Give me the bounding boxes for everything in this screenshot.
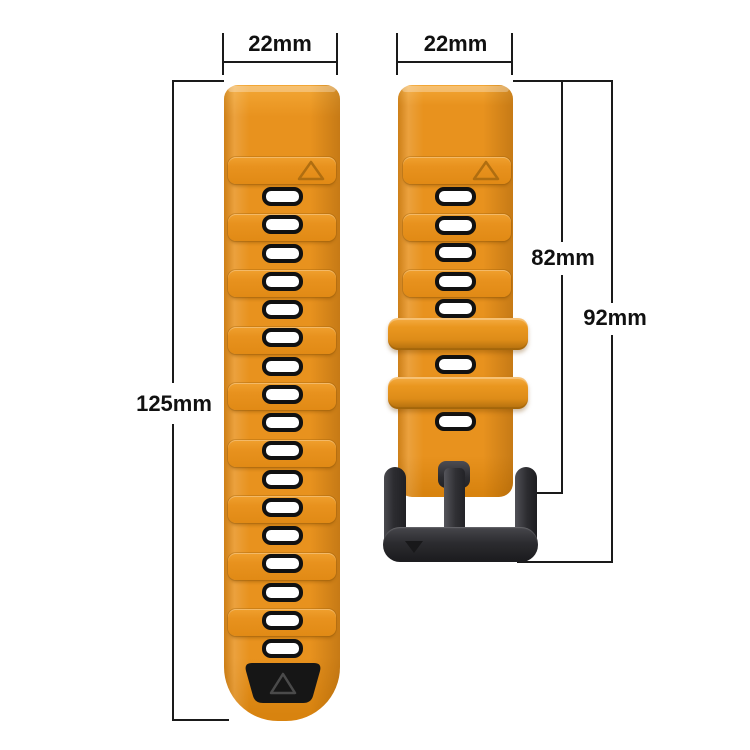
label-right-strap-82: 82mm: [513, 245, 613, 271]
strap-hole: [435, 412, 476, 431]
dim-line-82-v2: [561, 275, 563, 494]
strap-hole: [262, 583, 303, 602]
dim-line-left-width: [222, 61, 338, 63]
ridge-triangle-icon: [471, 159, 501, 183]
strap-hole: [435, 187, 476, 206]
strap-hole: [262, 526, 303, 545]
strap-hole: [262, 554, 303, 573]
strap-hole: [262, 244, 303, 263]
strap-ridge-segment: [228, 157, 336, 184]
strap-hole: [262, 300, 303, 319]
strap-hole: [262, 639, 303, 658]
strap-ridge-segment: [403, 157, 511, 184]
dim-line: [173, 719, 229, 721]
strap-hole: [262, 498, 303, 517]
strap-hole: [262, 187, 303, 206]
strap-hole: [435, 243, 476, 262]
keeper-loop-1: [388, 318, 528, 350]
dim-line: [173, 80, 224, 82]
strap-hole: [435, 216, 476, 235]
strap-hole: [262, 272, 303, 291]
ridge-triangle-icon: [296, 159, 326, 183]
label-right-strap-width: 22mm: [398, 31, 513, 57]
dim-line: [517, 561, 613, 563]
watch-band-dimension-diagram: 22mm 22mm 125mm 82mm 92mm: [0, 0, 750, 750]
strap-hole: [435, 355, 476, 374]
strap-hole: [262, 470, 303, 489]
left-strap-top-highlight: [228, 86, 336, 92]
dim-line-92-v1: [611, 80, 613, 303]
dim-line-left-length-v1: [172, 80, 174, 383]
strap-hole: [262, 441, 303, 460]
left-strap-tip-panel: [237, 660, 329, 708]
label-right-strap-92: 92mm: [565, 305, 665, 331]
dim-line-82-v1: [561, 80, 563, 242]
right-strap-top-highlight: [402, 86, 509, 92]
strap-hole: [262, 328, 303, 347]
dim-line: [513, 80, 613, 82]
dim-line-92-v2: [611, 335, 613, 563]
strap-hole: [262, 413, 303, 432]
dim-line-right-width: [396, 61, 513, 63]
keeper-loop-2: [388, 377, 528, 409]
buckle-triangle-icon: [405, 541, 423, 553]
strap-hole: [262, 385, 303, 404]
label-left-strap-length: 125mm: [114, 391, 234, 417]
strap-hole: [435, 272, 476, 291]
label-left-strap-width: 22mm: [223, 31, 337, 57]
strap-hole: [435, 299, 476, 318]
strap-hole: [262, 611, 303, 630]
strap-hole: [262, 215, 303, 234]
strap-hole: [262, 357, 303, 376]
dim-line-left-length-v2: [172, 424, 174, 721]
